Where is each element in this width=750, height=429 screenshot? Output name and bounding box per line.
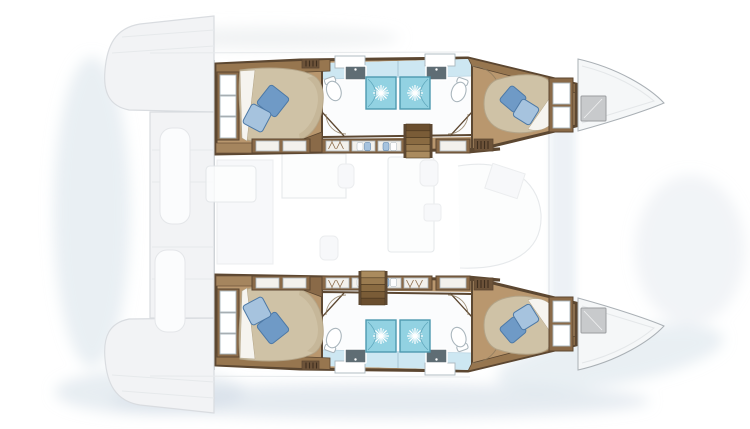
galley-stove: [424, 204, 441, 221]
galley-sink: [320, 236, 338, 260]
cockpit-pillar: [155, 250, 185, 332]
galley-sink: [420, 160, 438, 186]
cockpit-pillar: [160, 128, 190, 224]
foredeck-shadow: [550, 100, 576, 330]
galley-sink: [338, 164, 354, 188]
companionway-stairs-port: [404, 124, 433, 158]
transom-step-port: [105, 16, 214, 112]
catamaran-floorplan: [0, 0, 750, 429]
floorplan-canvas: [0, 0, 750, 429]
hull-port: [216, 54, 664, 154]
cockpit-table: [206, 166, 256, 202]
companionway-stairs-starboard: [359, 271, 388, 305]
hull-starboard: [216, 275, 664, 375]
saloon-window: [282, 154, 346, 198]
